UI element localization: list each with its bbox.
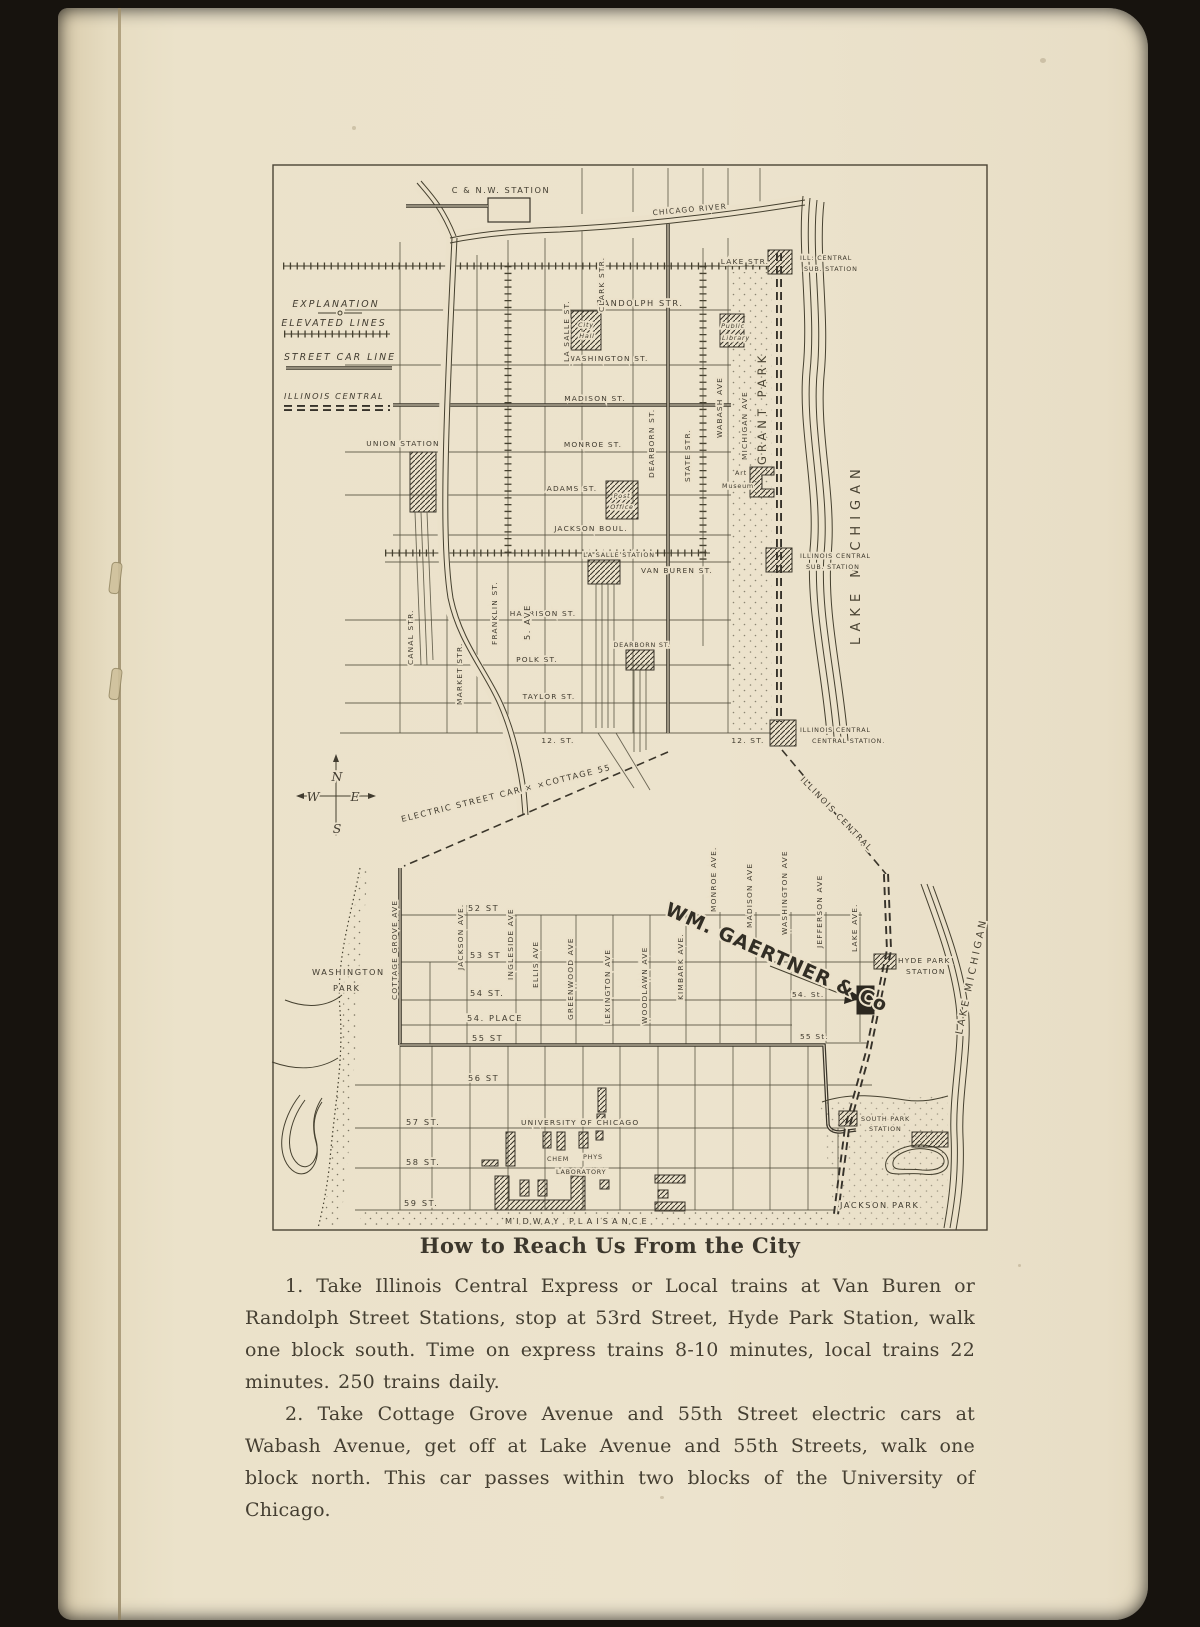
street-56-label: 56 ST xyxy=(468,1073,499,1083)
chicago-route-map: EXPLANATION ELEVATED LINES STREET CAR LI… xyxy=(258,150,1003,1245)
jackson-park-building xyxy=(912,1132,948,1147)
library-label-1: Public xyxy=(721,322,745,330)
canal-label: CANAL STR. xyxy=(406,609,415,665)
chem-label: CHEM xyxy=(547,1155,569,1163)
lake-street-label: LAKE STR. xyxy=(721,257,769,266)
washington-park-label-2: PARK xyxy=(333,983,360,993)
street-52-label: 52 ST xyxy=(468,903,499,913)
street-53-label: 53 ST xyxy=(470,950,501,960)
post-office-building xyxy=(606,481,638,519)
binding-crease xyxy=(118,8,121,1620)
madison-ave-label: MADISON AVE xyxy=(745,863,754,928)
washington-park-label-1: WASHINGTON xyxy=(312,967,385,977)
grant-park-label: GRANT PARK xyxy=(755,352,769,465)
lasalle-station-label: LA SALLE STATION xyxy=(583,551,655,559)
lasalle-station-building xyxy=(588,560,620,584)
washington-label: WASHINGTON ST. xyxy=(567,354,648,363)
jackson-label: JACKSON BOUL. xyxy=(553,524,628,533)
ic-sub-north-label-1: ILL: CENTRAL xyxy=(800,254,852,262)
legend-elevated-label: ELEVATED LINES xyxy=(281,318,386,329)
foxing-speck xyxy=(1040,58,1046,63)
legend-streetcar-label: STREET CAR LINE xyxy=(284,352,396,363)
art-museum-label-1: Art xyxy=(735,469,747,477)
electric-car-route-label: ELECTRIC STREET CAR × ×COTTAGE 55 xyxy=(400,762,612,824)
franklin-label: FRANKLIN ST. xyxy=(490,581,499,645)
lasalle-st-label: LA SALLE ST. xyxy=(562,300,571,362)
ic-sub-north-label-2: SUB. STATION xyxy=(804,265,858,273)
monroe-ave-label: MONROE AVE. xyxy=(709,846,718,912)
city-hall-label-2: Hall xyxy=(579,332,594,340)
union-station-label: UNION STATION xyxy=(366,439,440,448)
street-57-label: 57 ST. xyxy=(406,1117,440,1127)
clark-label: CLARK STR. xyxy=(597,257,606,312)
washington-ave-label: WASHINGTON AVE xyxy=(780,850,789,935)
city-hall-label-1: City xyxy=(578,321,594,329)
twelfth-label-west: 12. ST. xyxy=(541,736,574,745)
laboratory-label: LABORATORY xyxy=(556,1168,606,1176)
polk-label: POLK ST. xyxy=(516,655,558,664)
midway-label: MIDWAY PLAISANCE xyxy=(505,1216,651,1226)
hyde-park-station-label-2: STATION xyxy=(906,967,946,976)
dearborn-station-building xyxy=(626,650,654,670)
ellis-label: ELLIS AVE xyxy=(531,941,540,988)
foxing-speck xyxy=(352,126,356,130)
adams-label: ADAMS ST. xyxy=(547,484,598,493)
foxing-speck xyxy=(1018,1264,1021,1267)
ic-sub-south-label-1: ILLINOIS CENTRAL xyxy=(800,552,871,560)
cottage-grove-label: COTTAGE GROVE AVE xyxy=(390,900,399,1000)
post-office-label-2: Office xyxy=(610,503,634,511)
michigan-ave-label: MICHIGAN AVE xyxy=(740,391,749,460)
cnw-station-building xyxy=(488,198,530,222)
street-55-label: 55 ST xyxy=(472,1033,503,1043)
dearborn-ns-label: DEARBORN ST. xyxy=(647,409,656,478)
ic-sub-south-label-2: SUB. STATION xyxy=(806,563,860,571)
ic-sub-station-south-box xyxy=(766,548,792,572)
washington-park-path xyxy=(282,1095,322,1174)
lake-michigan-label-bottom: LAKE MICHIGAN xyxy=(954,917,989,1035)
monroe-label: MONROE ST. xyxy=(564,440,622,449)
street-58-label: 58 ST. xyxy=(406,1157,440,1167)
compass-east: E xyxy=(349,789,359,804)
madison-label: MADISON ST. xyxy=(564,394,626,403)
van-buren-label: VAN BUREN ST. xyxy=(641,566,713,575)
map-legend: EXPLANATION ELEVATED LINES STREET CAR LI… xyxy=(281,299,396,408)
washington-park-path xyxy=(285,995,342,1005)
street-59-label: 59 ST. xyxy=(404,1198,438,1208)
ic-sub-station-north-box xyxy=(768,250,792,274)
hyde-park-station-label-1: HYDE PARK xyxy=(898,956,951,965)
compass-north: N xyxy=(331,769,344,784)
downtown-street-grid xyxy=(283,168,772,733)
ingleside-label: INGLESIDE AVE xyxy=(506,908,515,980)
washington-park-edge xyxy=(324,868,368,1228)
greenwood-label: GREENWOOD AVE xyxy=(566,937,575,1020)
university-buildings xyxy=(482,1088,685,1211)
cnw-station-label: C & N.W. STATION xyxy=(452,185,551,195)
direction-paragraph-1: 1. Take Illinois Central Express or Loca… xyxy=(245,1270,975,1398)
ic-route-label: ILLINOIS CENTRAL xyxy=(799,774,876,853)
scanned-book-page: EXPLANATION ELEVATED LINES STREET CAR LI… xyxy=(0,0,1200,1627)
page-title: How to Reach Us From the City xyxy=(245,1233,975,1258)
south-park-station-box xyxy=(839,1111,857,1126)
jackson-park-label: JACKSON PARK xyxy=(839,1200,919,1210)
compass-rose: N W E S xyxy=(296,754,376,836)
ic-central-station-box xyxy=(770,720,796,746)
south-park-station-label-1: SOUTH PARK xyxy=(861,1115,910,1123)
lake-shore xyxy=(801,196,848,741)
city-hall-building xyxy=(571,311,601,350)
street-54-right-label: 54. St. xyxy=(792,990,824,999)
direction-paragraph-2: 2. Take Cottage Grove Avenue and 55th St… xyxy=(245,1398,975,1526)
union-station-building xyxy=(410,452,436,512)
market-label: MARKET STR. xyxy=(455,642,464,705)
south-park-station-label-2: STATION xyxy=(869,1125,902,1133)
randolph-label: RANDOLPH STR. xyxy=(596,298,683,308)
ic-central-label-2: CENTRAL STATION. xyxy=(812,737,885,745)
street-55-right-label: 55 St. xyxy=(800,1032,829,1041)
woodlawn-label: WOODLAWN AVE xyxy=(640,947,649,1024)
library-label-2: Library xyxy=(722,334,750,342)
legend-ic-label: ILLINOIS CENTRAL xyxy=(284,391,384,401)
kimbark-label: KIMBARK AVE. xyxy=(676,933,685,1000)
state-label: STATE STR. xyxy=(683,429,692,482)
university-label: UNIVERSITY OF CHICAGO xyxy=(521,1118,639,1127)
washington-park-path xyxy=(272,1058,338,1068)
directions-text: How to Reach Us From the City 1. Take Il… xyxy=(245,1233,975,1526)
ic-central-label-1: ILLINOIS CENTRAL xyxy=(800,726,871,734)
dearborn-station-label: DEARBORN ST. xyxy=(613,641,670,649)
harrison-label: HARRISON ST. xyxy=(510,609,577,618)
fifth-ave-label: 5. AVE xyxy=(522,604,532,640)
wabash-label: WABASH AVE xyxy=(715,377,724,438)
hyde-park-station-box xyxy=(874,954,896,969)
lake-ave-label: LAKE AVE. xyxy=(850,903,859,952)
taylor-label: TAYLOR ST. xyxy=(522,692,576,701)
jefferson-ave-label: JEFFERSON AVE xyxy=(815,875,824,949)
phys-label: PHYS xyxy=(583,1153,603,1161)
post-office-label-1: Post xyxy=(614,492,631,500)
place-54-label: 54. PLACE xyxy=(467,1013,523,1023)
jackson-ave-label: JACKSON AVE. xyxy=(456,904,465,971)
compass-south: S xyxy=(333,821,342,836)
art-museum-label-2: Museum xyxy=(722,482,754,490)
public-library-building xyxy=(720,314,744,347)
twelfth-label-east: 12. ST. xyxy=(731,736,764,745)
legend-title: EXPLANATION xyxy=(292,299,379,310)
lexington-label: LEXINGTON AVE xyxy=(603,949,612,1024)
compass-west: W xyxy=(307,789,321,804)
street-54-label: 54 ST. xyxy=(470,988,504,998)
